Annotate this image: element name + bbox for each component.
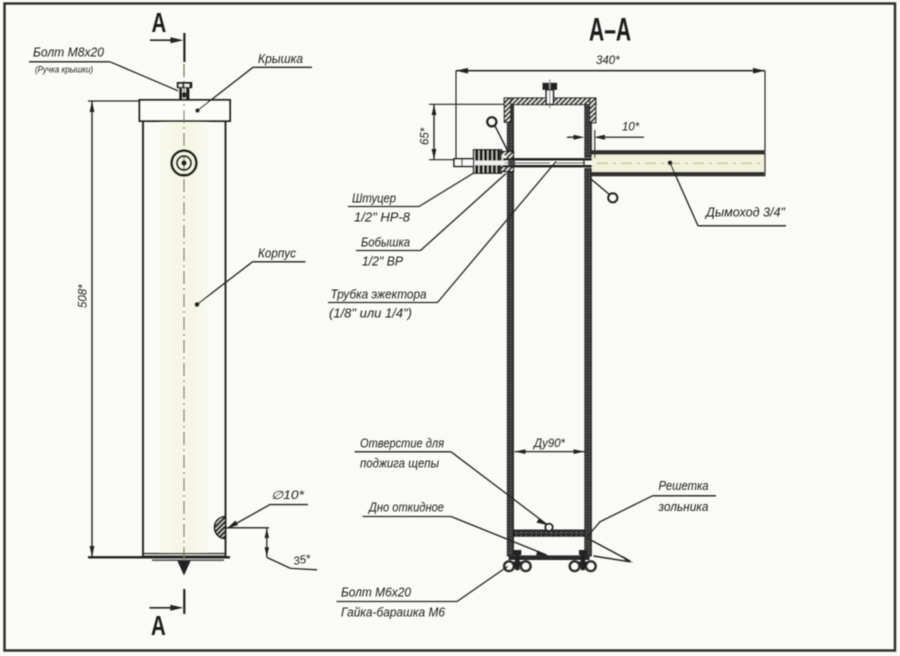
svg-text:Штуцер: Штуцер bbox=[352, 191, 396, 206]
svg-text:1/2" ВР: 1/2" ВР bbox=[362, 254, 403, 269]
svg-text:Болт М6х20: Болт М6х20 bbox=[341, 585, 412, 600]
svg-text:Решетка: Решетка bbox=[659, 478, 709, 493]
svg-text:A: A bbox=[152, 8, 167, 39]
svg-text:10*: 10* bbox=[622, 122, 640, 134]
svg-text:Дымоход 3/4": Дымоход 3/4" bbox=[704, 205, 786, 220]
svg-text:Ду90*: Ду90* bbox=[532, 438, 565, 450]
svg-text:A: A bbox=[151, 611, 166, 642]
svg-text:зольника: зольника bbox=[658, 499, 709, 514]
svg-text:Корпус: Корпус bbox=[258, 246, 296, 261]
svg-text:1/2" НР-8: 1/2" НР-8 bbox=[354, 210, 411, 225]
svg-text:A–A: A–A bbox=[589, 11, 631, 48]
svg-text:поджига щепы: поджига щепы bbox=[360, 456, 439, 471]
svg-text:508*: 508* bbox=[78, 284, 90, 308]
svg-text:Бобышка: Бобышка bbox=[361, 235, 410, 250]
svg-text:Болт М8х20: Болт М8х20 bbox=[33, 45, 105, 60]
svg-text:(Ручка крышки): (Ручка крышки) bbox=[35, 65, 93, 76]
svg-text:340*: 340* bbox=[596, 55, 620, 67]
svg-text:∅10*: ∅10* bbox=[271, 490, 305, 502]
svg-text:Трубка эжектора: Трубка эжектора bbox=[331, 287, 427, 302]
svg-text:Дно откидное: Дно откидное bbox=[367, 500, 444, 515]
svg-text:Крышка: Крышка bbox=[258, 51, 303, 66]
svg-text:Отверстие для: Отверстие для bbox=[360, 436, 444, 451]
svg-text:65*: 65* bbox=[420, 127, 432, 145]
svg-text:(1/8" или 1/4"): (1/8" или 1/4") bbox=[329, 306, 412, 321]
svg-text:Гайка-барашка М6: Гайка-барашка М6 bbox=[341, 605, 446, 620]
